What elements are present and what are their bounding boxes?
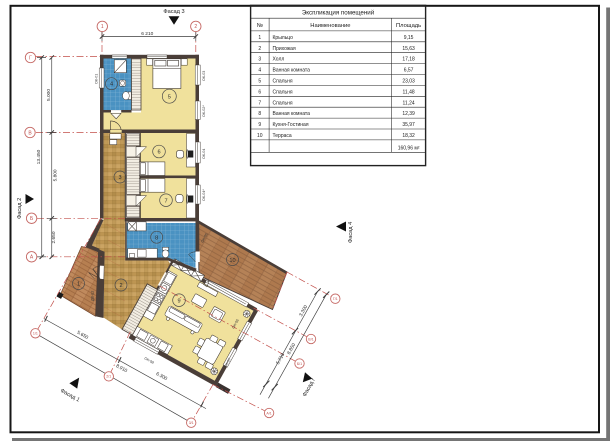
svg-text:Ванная комната: Ванная комната [273,68,311,74]
svg-text:1: 1 [258,35,261,41]
svg-text:2: 2 [194,24,197,30]
svg-text:1: 1 [101,24,104,30]
svg-text:Экспликация помещений: Экспликация помещений [302,9,375,16]
svg-text:5.000: 5.000 [46,89,52,101]
svg-text:ОК-04*: ОК-04* [202,189,206,201]
svg-text:2.650: 2.650 [51,231,57,243]
svg-text:160,96 м²: 160,96 м² [398,145,420,151]
svg-text:3/1: 3/1 [189,421,194,425]
svg-text:6 210: 6 210 [141,31,153,37]
svg-text:Крыльцо: Крыльцо [273,35,294,41]
svg-text:10: 10 [257,133,263,139]
svg-text:ОК-02*: ОК-02* [202,105,206,117]
svg-text:Г: Г [29,55,32,61]
svg-text:Фасад 3: Фасад 3 [163,9,184,15]
svg-text:3: 3 [258,57,261,63]
svg-text:10: 10 [229,258,235,264]
svg-text:ОК-01: ОК-01 [95,74,99,84]
svg-text:8: 8 [258,111,261,117]
svg-text:Спальня: Спальня [273,79,293,85]
svg-text:6: 6 [258,89,261,95]
svg-text:Ванная комната: Ванная комната [273,111,311,117]
svg-text:№: № [257,23,263,29]
svg-text:Спальня: Спальня [273,89,293,95]
svg-text:8: 8 [155,235,158,241]
svg-text:Б/1: Б/1 [297,362,302,366]
svg-text:В/1: В/1 [308,337,313,341]
svg-text:7: 7 [258,100,261,106]
svg-text:1/1: 1/1 [33,332,38,336]
svg-text:5: 5 [258,79,261,85]
svg-text:4: 4 [110,82,113,88]
svg-text:7: 7 [164,198,167,204]
svg-text:6: 6 [157,150,160,156]
svg-text:4: 4 [258,68,261,74]
svg-text:9: 9 [258,122,261,128]
svg-text:1: 1 [77,282,80,288]
svg-text:Г/1: Г/1 [333,297,338,301]
svg-text:Терраса: Терраса [273,133,292,139]
svg-text:9,15: 9,15 [404,35,414,41]
svg-text:Прихожая: Прихожая [273,46,296,52]
svg-text:17,18: 17,18 [402,57,415,63]
svg-text:11,48: 11,48 [403,89,415,95]
svg-text:12,39: 12,39 [402,111,415,117]
svg-text:6,57: 6,57 [404,68,414,74]
svg-text:А/1: А/1 [266,411,271,415]
svg-text:2/1: 2/1 [106,375,111,379]
svg-text:2: 2 [258,46,261,52]
svg-text:Наименование: Наименование [310,23,350,29]
svg-text:Спальня: Спальня [273,100,293,106]
svg-text:Кухня-Гостиная: Кухня-Гостиная [273,122,309,128]
svg-text:ДВ-02: ДВ-02 [91,291,95,301]
svg-text:Площадь: Площадь [396,23,421,29]
svg-text:Фасад 2: Фасад 2 [17,198,23,219]
svg-text:ОК-04: ОК-04 [202,149,206,159]
svg-text:5: 5 [168,94,171,100]
svg-text:Фасад 4: Фасад 4 [348,222,354,243]
svg-text:3: 3 [118,175,121,181]
svg-text:5.800: 5.800 [52,169,58,181]
svg-text:18,32: 18,32 [402,133,415,139]
svg-text:11,24: 11,24 [403,100,415,106]
svg-text:13.450: 13.450 [36,149,42,164]
svg-text:9: 9 [177,298,180,304]
svg-text:2: 2 [119,283,122,289]
svg-text:ОК-03: ОК-03 [202,71,206,81]
svg-text:15,63: 15,63 [402,46,415,52]
svg-text:35,97: 35,97 [402,122,415,128]
svg-text:Холл: Холл [273,57,285,63]
svg-text:23,03: 23,03 [402,79,415,85]
